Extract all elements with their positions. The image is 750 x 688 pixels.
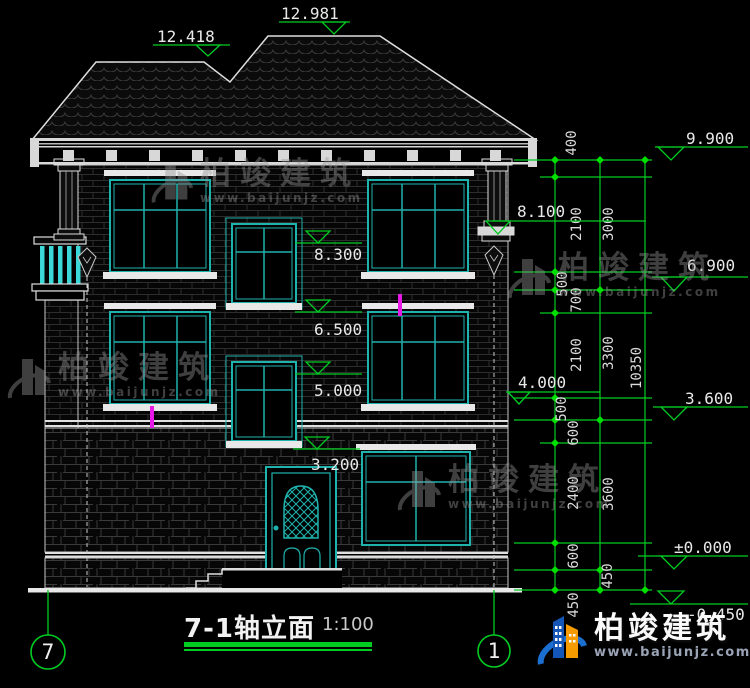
level-neg450 (630, 591, 748, 604)
window-stair-lower (226, 356, 302, 448)
brand-logo-icon (533, 612, 589, 676)
drawing-title: 7-1轴立面 (184, 608, 315, 645)
magenta-mark-left (150, 406, 154, 428)
label-0000: ±0.000 (674, 538, 732, 557)
label-3200: 3.200 (311, 455, 359, 474)
dim-10350: 10350 (629, 347, 645, 389)
drawing-scale: 1:100 (322, 614, 374, 635)
dim-700: 700 (569, 287, 585, 312)
brand-logo: 柏竣建筑 www.baijunjz.com (533, 612, 750, 676)
label-12418: 12.418 (157, 27, 215, 46)
level-3600 (653, 407, 748, 420)
label-6900: 6.900 (687, 256, 735, 275)
label-4000: 4.000 (518, 373, 566, 392)
cad-drawing: 400 2100 500 700 2100 500 600 2400 600 4… (0, 0, 750, 688)
window-stair-upper (226, 218, 302, 310)
axis-7-label: 7 (42, 640, 55, 664)
brand-name: 柏竣建筑 (594, 612, 750, 645)
brand-url: www.baijunjz.com (594, 645, 750, 660)
ground-line (28, 588, 522, 593)
axis-1-label: 1 (488, 639, 501, 663)
dim-2400: 2400 (566, 476, 582, 510)
label-6500: 6.500 (314, 320, 362, 339)
label-8100: 8.100 (517, 202, 565, 221)
window-gf-right (356, 444, 476, 545)
level-6900 (652, 277, 748, 291)
window-3f-right (361, 170, 475, 279)
entry-door (266, 467, 336, 579)
dim-3300: 3300 (601, 336, 617, 370)
label-9900: 9.900 (686, 129, 734, 148)
label-8300: 8.300 (314, 245, 362, 264)
level-0000 (638, 556, 748, 569)
label-3600: 3.600 (685, 389, 733, 408)
balcony (32, 237, 88, 300)
dim-2100a: 2100 (569, 207, 585, 241)
dim-3600: 3600 (601, 477, 617, 511)
dim-400: 400 (564, 130, 580, 155)
level-12981 (279, 22, 350, 34)
dentils (63, 150, 501, 161)
axis-bubble-7: 7 (31, 590, 65, 669)
dim-600b: 600 (566, 543, 582, 568)
dim-450b: 450 (600, 563, 616, 588)
level-12418 (153, 45, 230, 56)
title-underline-thin (184, 649, 372, 651)
axis-bubble-1: 1 (478, 590, 510, 667)
dim-600a: 600 (566, 420, 582, 445)
label-5000: 5.000 (314, 381, 362, 400)
level-9900 (655, 147, 748, 160)
dim-3000: 3000 (601, 207, 617, 241)
window-2f-left (103, 303, 217, 411)
window-3f-left (103, 170, 217, 279)
dim-500b: 500 (554, 396, 570, 421)
title-underline (184, 642, 372, 647)
elevation-drawing-canvas: 400 2100 500 700 2100 500 600 2400 600 4… (0, 0, 750, 688)
cornice (30, 138, 537, 167)
magenta-mark-right (398, 294, 402, 316)
window-2f-right (361, 303, 475, 411)
label-12981: 12.981 (281, 4, 339, 23)
roof (32, 36, 536, 140)
dim-2100b: 2100 (569, 338, 585, 372)
